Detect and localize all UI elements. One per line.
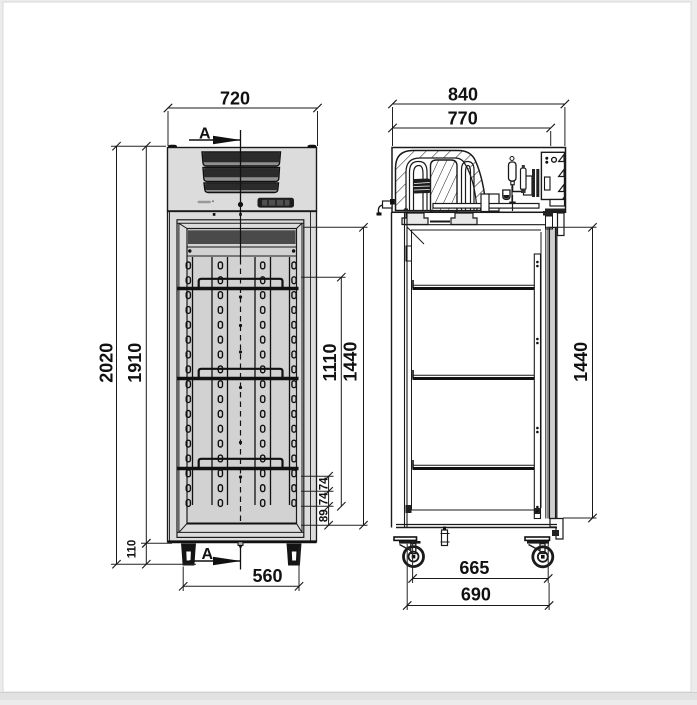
svg-text:74: 74	[319, 477, 331, 490]
svg-text:1910: 1910	[125, 343, 145, 383]
svg-text:74: 74	[319, 492, 331, 505]
svg-text:1110: 1110	[320, 343, 340, 381]
svg-text:690: 690	[461, 585, 491, 605]
svg-text:840: 840	[448, 85, 478, 105]
svg-text:2020: 2020	[97, 343, 117, 383]
svg-text:560: 560	[252, 566, 282, 586]
svg-text:665: 665	[459, 558, 489, 578]
svg-text:720: 720	[220, 89, 250, 109]
svg-text:1440: 1440	[340, 342, 360, 382]
svg-text:89: 89	[319, 509, 331, 522]
svg-text:770: 770	[448, 109, 478, 129]
svg-text:1440: 1440	[571, 342, 591, 382]
svg-text:110: 110	[127, 540, 139, 559]
